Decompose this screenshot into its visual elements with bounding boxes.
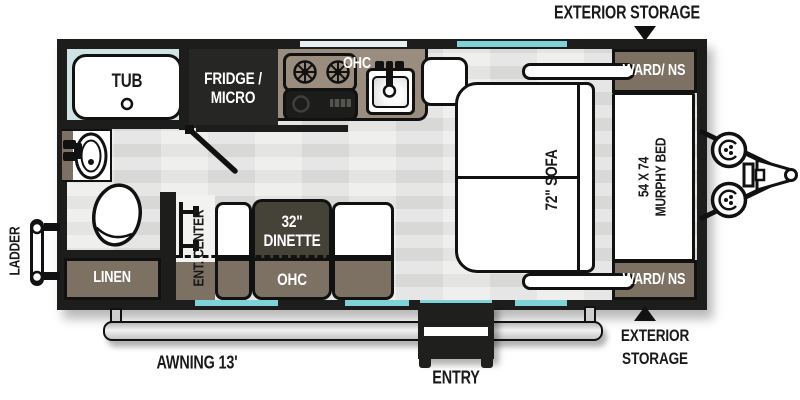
kitchen-sink-bowl [372, 76, 409, 108]
entry-label: ENTRY [432, 368, 479, 389]
rv-floorplan: EXTERIOR STORAGE EXTERIOR STORAGE TUB FR… [0, 0, 800, 400]
window-bottom-mid [345, 300, 409, 306]
ohc-dashed-line [176, 255, 394, 258]
ladder-icon [30, 219, 44, 286]
dinette-bench-right-base [332, 258, 394, 300]
propane-tank-icon [713, 134, 746, 167]
wardrobe-bottom-label: WARD/ NS [623, 271, 686, 289]
wall-linen-top [57, 250, 161, 258]
dinette-label: 32" DINETTE [263, 212, 320, 250]
ladder-arm-top [44, 223, 60, 231]
fridge-micro-label: FRIDGE / MICRO [204, 69, 262, 107]
sofa-armrest-top [522, 63, 635, 80]
arrow-up-icon [634, 306, 656, 321]
awning-label: AWNING 13' [156, 353, 237, 374]
wardrobe-top-label: WARD/ NS [623, 62, 686, 80]
linen-label: LINEN [93, 269, 131, 287]
dinette-bench-left [215, 202, 252, 258]
entry-foot-left [419, 359, 431, 368]
window-top-kitchen [300, 41, 407, 47]
oven [283, 88, 358, 121]
ladder-arm-bottom [44, 272, 60, 280]
counter-front-edge [196, 125, 348, 132]
exterior-storage-top-label: EXTERIOR STORAGE [554, 3, 700, 24]
wall-tub-bottom [57, 120, 189, 129]
dinette-ohc-label: OHC [277, 270, 307, 290]
dinette-bench-right [332, 202, 394, 258]
wall-ent-center [168, 192, 176, 300]
window-top-sofa [457, 41, 567, 47]
sofa-label: 72" SOFA [542, 149, 562, 210]
wall-tub-right [179, 49, 189, 130]
hitch-icon [700, 131, 797, 219]
awning-bar [103, 321, 603, 341]
ent-center-label: ENT. CENTER [191, 210, 208, 287]
arrow-down-icon [634, 26, 656, 41]
vanity-counter-strip [62, 131, 73, 180]
ladder-label: LADDER [7, 226, 24, 275]
dinette-bench-left-base [215, 258, 252, 300]
propane-tank-icon [713, 184, 746, 217]
window-bottom-sofa [515, 300, 567, 306]
murphy-bed-label: 54 X 74 MURPHY BED [637, 138, 670, 217]
tub-label: TUB [112, 71, 143, 93]
kitchen-ohc-label: OHC [343, 55, 371, 73]
entry-step-tread [424, 327, 488, 336]
entry-foot-right [481, 359, 493, 368]
window-bottom-dinette [195, 300, 278, 306]
exterior-storage-bottom-label: EXTERIOR STORAGE [621, 324, 689, 370]
sofa-armrest-bottom [522, 273, 635, 290]
